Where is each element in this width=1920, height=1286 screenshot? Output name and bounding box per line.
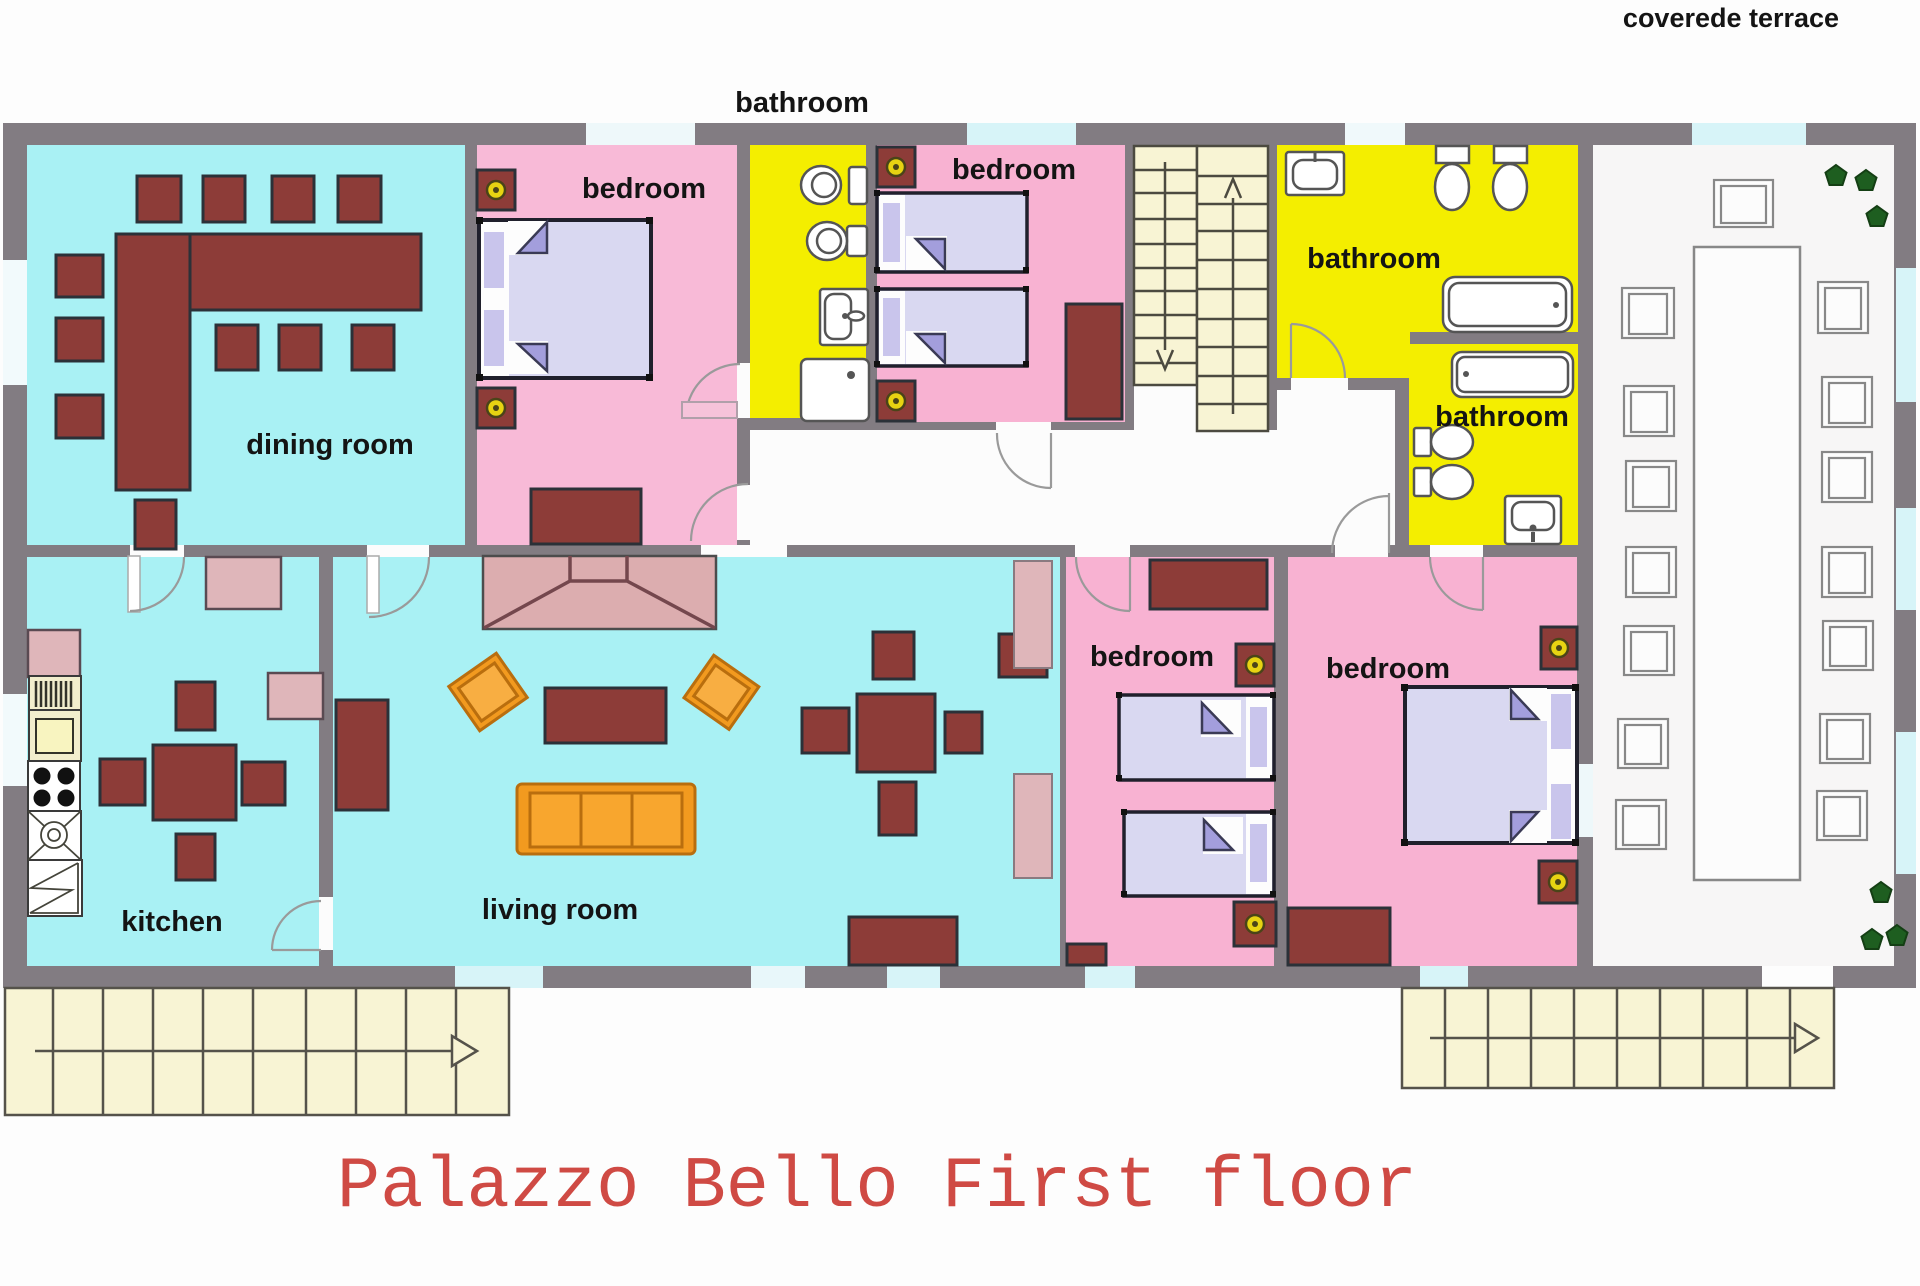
svg-text:bedroom: bedroom <box>582 173 706 205</box>
svg-text:Palazzo Bello First floor: Palazzo Bello First floor <box>337 1146 1417 1228</box>
svg-text:bedroom: bedroom <box>1326 653 1450 685</box>
svg-text:living room: living room <box>482 894 638 926</box>
svg-text:kitchen: kitchen <box>121 906 223 938</box>
svg-text:bedroom: bedroom <box>1090 641 1214 673</box>
svg-text:bathroom: bathroom <box>1307 243 1441 275</box>
svg-text:dining room: dining room <box>246 429 414 461</box>
svg-text:bedroom: bedroom <box>952 154 1076 186</box>
svg-text:coverede terrace: coverede terrace <box>1623 3 1839 33</box>
svg-text:bathroom: bathroom <box>1435 401 1569 433</box>
svg-text:bathroom: bathroom <box>735 87 869 119</box>
